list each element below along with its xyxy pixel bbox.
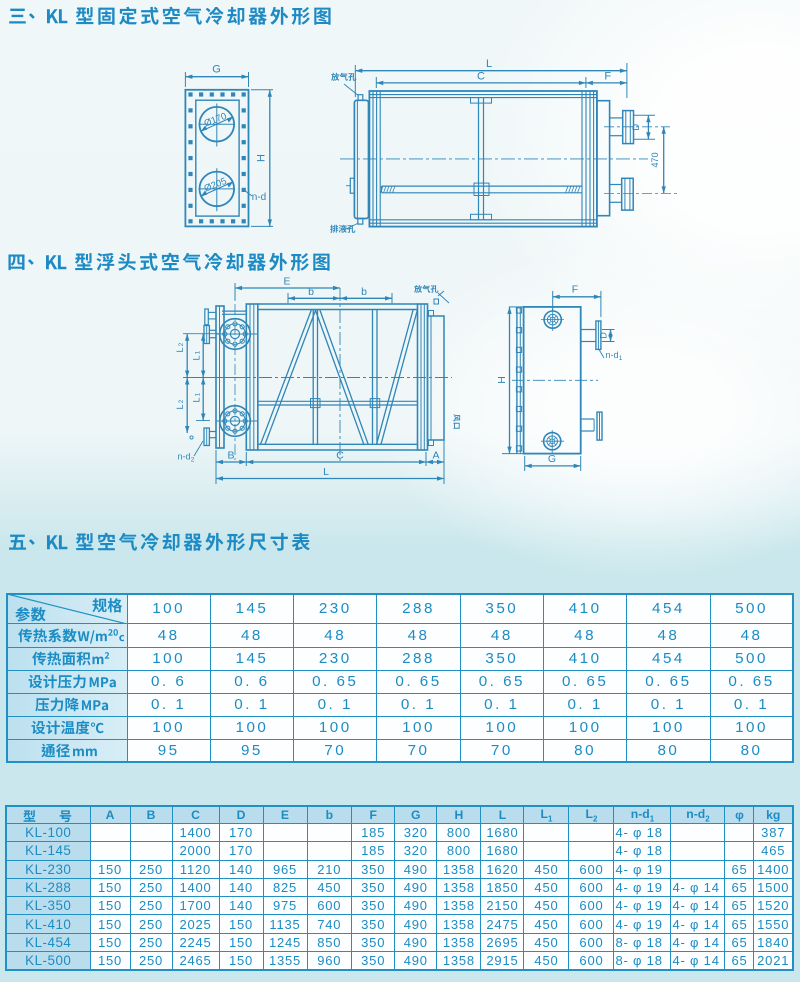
svg-text:n-d: n-d — [605, 350, 618, 360]
svg-text:F: F — [572, 284, 578, 296]
svg-text:G: G — [548, 453, 556, 465]
svg-text:D: D — [599, 332, 609, 339]
svg-text:1: 1 — [619, 355, 623, 362]
svg-text:H: H — [496, 376, 508, 384]
